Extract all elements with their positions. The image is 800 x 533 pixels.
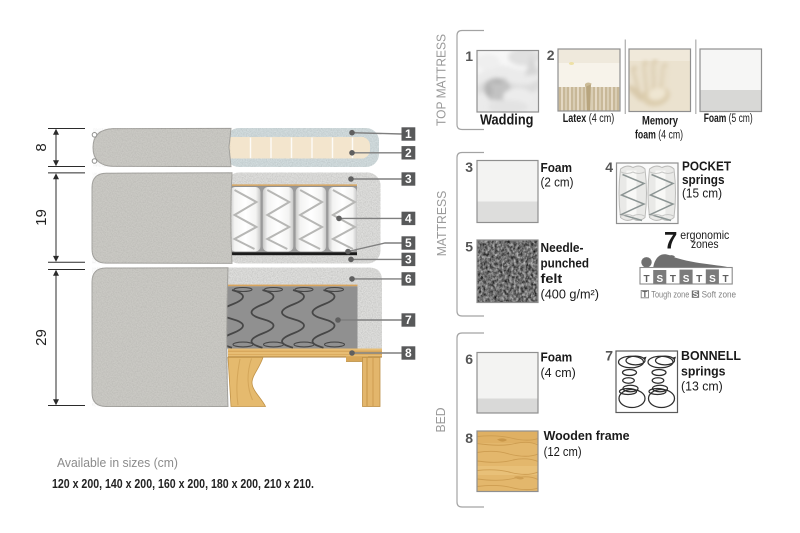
svg-text:2: 2 xyxy=(547,47,555,63)
svg-text:(2 cm): (2 cm) xyxy=(541,175,574,190)
svg-text:6: 6 xyxy=(405,272,412,286)
svg-text:Memory: Memory xyxy=(642,114,678,128)
svg-text:3: 3 xyxy=(465,159,473,175)
svg-text:7: 7 xyxy=(405,313,412,327)
svg-text:S: S xyxy=(693,289,699,299)
svg-text:5: 5 xyxy=(465,239,473,255)
svg-text:4: 4 xyxy=(405,211,412,225)
svg-text:springs: springs xyxy=(681,364,726,379)
svg-text:2: 2 xyxy=(405,146,412,160)
svg-text:(12 cm): (12 cm) xyxy=(544,444,582,459)
svg-text:MATTRESS: MATTRESS xyxy=(434,190,449,256)
svg-text:8: 8 xyxy=(405,346,412,360)
svg-text:S: S xyxy=(709,274,716,285)
svg-text:7: 7 xyxy=(605,348,613,364)
svg-text:S: S xyxy=(683,274,690,285)
svg-text:T: T xyxy=(644,274,650,285)
svg-text:TOP MATTRESS: TOP MATTRESS xyxy=(434,34,449,126)
svg-text:Soft zone: Soft zone xyxy=(702,289,737,299)
svg-text:T: T xyxy=(670,274,676,285)
svg-text:3: 3 xyxy=(405,252,412,266)
svg-text:Foam: Foam xyxy=(541,160,573,175)
svg-text:Needle-: Needle- xyxy=(541,240,584,255)
svg-text:Latex (4 cm): Latex (4 cm) xyxy=(563,111,615,125)
svg-text:felt: felt xyxy=(541,271,563,286)
svg-text:Wadding: Wadding xyxy=(480,113,534,129)
svg-text:29: 29 xyxy=(33,329,50,346)
svg-text:foam (4 cm): foam (4 cm) xyxy=(635,128,683,142)
svg-text:T: T xyxy=(642,289,648,299)
svg-text:3: 3 xyxy=(405,172,412,186)
svg-text:BED: BED xyxy=(433,408,448,433)
svg-text:5: 5 xyxy=(405,236,412,250)
svg-text:6: 6 xyxy=(465,351,473,367)
svg-text:(15 cm): (15 cm) xyxy=(682,186,722,201)
svg-text:Available in sizes (cm): Available in sizes (cm) xyxy=(57,455,178,470)
svg-text:(400 g/m²): (400 g/m²) xyxy=(541,287,600,302)
svg-text:(13 cm): (13 cm) xyxy=(681,379,723,394)
svg-text:Tough zone: Tough zone xyxy=(651,289,689,299)
svg-text:T: T xyxy=(696,274,702,285)
svg-text:punched: punched xyxy=(541,256,590,271)
svg-text:1: 1 xyxy=(405,127,412,141)
svg-text:7: 7 xyxy=(664,227,677,254)
svg-text:zones: zones xyxy=(691,237,719,251)
svg-text:BONNELL: BONNELL xyxy=(681,348,741,363)
svg-text:S: S xyxy=(656,274,663,285)
svg-text:120 x 200, 140 x 200, 160 x 20: 120 x 200, 140 x 200, 160 x 200, 180 x 2… xyxy=(52,476,314,491)
svg-text:(4 cm): (4 cm) xyxy=(541,365,576,380)
svg-text:T: T xyxy=(722,274,728,285)
svg-text:8: 8 xyxy=(465,430,473,446)
svg-text:4: 4 xyxy=(605,159,613,175)
svg-text:1: 1 xyxy=(465,48,473,64)
svg-text:Foam (5 cm): Foam (5 cm) xyxy=(704,111,753,125)
svg-text:Foam: Foam xyxy=(541,350,573,365)
svg-text:19: 19 xyxy=(33,209,50,226)
svg-text:Wooden frame: Wooden frame xyxy=(544,428,630,443)
svg-text:8: 8 xyxy=(33,143,50,151)
